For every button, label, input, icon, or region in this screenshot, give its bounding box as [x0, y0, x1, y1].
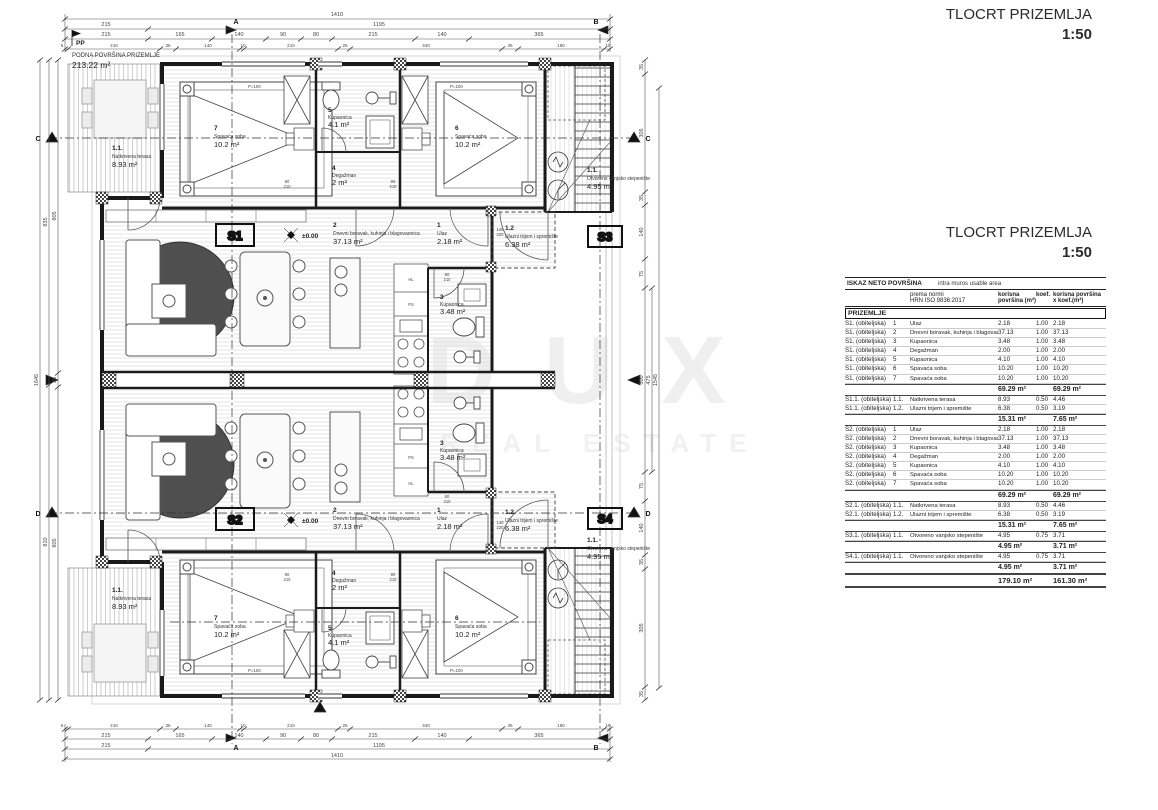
cell-area-coef: 37.13	[1053, 435, 1105, 443]
unit-label-s4: S4	[598, 512, 613, 526]
cell-area: 4.10	[998, 462, 1036, 470]
room-area: 4.95 m²	[587, 182, 613, 191]
cell-coefficient: 1.00	[1036, 480, 1053, 488]
cell-area-coef: 4.10	[1053, 356, 1105, 364]
marker-b: B	[593, 745, 598, 752]
dim-label: 475	[646, 375, 652, 384]
room-area: 4.95 m²	[587, 552, 613, 561]
cell-number	[893, 563, 910, 573]
sink-icon	[366, 92, 378, 104]
cell-coefficient: 1.00	[1036, 338, 1053, 346]
appliance-tag: HL	[408, 277, 414, 282]
cell-number	[893, 575, 910, 586]
dim-label: 215	[101, 733, 110, 739]
section-flag-d	[46, 507, 58, 517]
cell-area-coef: 10.20	[1053, 480, 1105, 488]
cell-area: 2.00	[998, 453, 1036, 461]
cell-area-coef: 2.18	[1053, 426, 1105, 434]
cell-room-name: Spavaća soba	[910, 365, 998, 373]
dim-label: 340	[422, 43, 430, 48]
dim-label: 10	[240, 723, 246, 728]
cell-area: 6.38	[998, 405, 1036, 413]
dim-label: 140	[234, 32, 243, 38]
dim-label: 90	[280, 32, 286, 38]
dim-label: 165	[175, 733, 184, 739]
cell-number: 1.2.	[893, 405, 910, 413]
cell-number: 2	[893, 329, 910, 337]
table-title: ISKAZ NETO POVRŠINA	[847, 280, 922, 287]
cell-area: 8.93	[998, 502, 1036, 510]
table-row: 4.95 m² 3.71 m²	[845, 562, 1106, 574]
table-row: 69.29 m² 69.29 m²	[845, 384, 1106, 396]
cell-area: 37.13	[998, 435, 1036, 443]
cell-area: 2.18	[998, 426, 1036, 434]
room-number: 4	[332, 165, 336, 172]
room-number: 2	[333, 507, 337, 514]
cell-unit: S1. (obiteljska)	[845, 347, 893, 355]
cell-coefficient: 1.00	[1036, 435, 1053, 443]
table-row: S2.1. (obiteljska) 1.1. Natkrivena teras…	[845, 502, 1106, 511]
table-row: S2. (obiteljska) 7 Spavaća soba 10.20 1.…	[845, 480, 1106, 489]
cell-room-name: Degažman	[910, 347, 998, 355]
dim-label: 305	[639, 623, 645, 632]
dim-label: 35	[639, 691, 645, 697]
room-area: 2 m²	[332, 178, 348, 187]
dim-label: 190	[557, 43, 565, 48]
cell-unit: S2. (obiteljska)	[845, 471, 893, 479]
table-row: S2. (obiteljska) 2 Dnevni boravak, kuhin…	[845, 435, 1106, 444]
table-row: S2. (obiteljska) 1 Ulaz 2.18 1.00 2.18	[845, 426, 1106, 435]
cell-area-coef: 7.65 m²	[1053, 521, 1105, 531]
cell-coefficient: 0.50	[1036, 502, 1053, 510]
cell-room-name: Otvoreno vanjsko stepenište	[910, 532, 998, 540]
cell-number	[893, 415, 910, 425]
dim-label: 1195	[373, 22, 385, 28]
dim-label: 10	[240, 43, 246, 48]
dim-label: 10	[605, 723, 611, 728]
cell-room-name: Spavaća soba	[910, 471, 998, 479]
door-tag: 210	[390, 184, 398, 189]
room-area: 2 m²	[332, 583, 348, 592]
area-table-columns: prema normi HRN ISO 9836:2017 korisna po…	[845, 290, 1106, 307]
window-tag: P=100	[450, 84, 463, 89]
cell-area-coef: 69.29 m²	[1053, 491, 1105, 501]
dim-label: 140	[639, 523, 645, 532]
table-row: S1. (obiteljska) 4 Degažman 2.00 1.00 2.…	[845, 347, 1106, 356]
dim-label: 1545	[653, 374, 659, 386]
room-number: 4	[332, 570, 336, 577]
dim-label: 25	[342, 43, 348, 48]
table-row: S1.1. (obiteljska) 1.2. Ulazni trijem i …	[845, 405, 1106, 414]
door-tag: 210	[284, 577, 292, 582]
cell-room-name: Kupaonica	[910, 338, 998, 346]
dim-label: 140	[639, 227, 645, 236]
cell-room-name: Spavaća soba	[910, 480, 998, 488]
table-row: 15.31 m² 7.65 m²	[845, 520, 1106, 532]
dim-label: 190	[557, 723, 565, 728]
cell-area: 4.95 m²	[998, 563, 1036, 573]
cell-unit: S1. (obiteljska)	[845, 338, 893, 346]
cell-room-name	[910, 415, 998, 425]
cell-area: 15.31 m²	[998, 415, 1036, 425]
coffee-table	[152, 284, 186, 318]
dim-label: 25	[342, 723, 348, 728]
cell-coefficient	[1036, 575, 1053, 586]
door-tag: 220	[497, 525, 505, 530]
room-area: 6.38 m²	[505, 524, 531, 533]
cell-number: 7	[893, 375, 910, 383]
cell-number: 3	[893, 338, 910, 346]
dim-label: 140	[437, 32, 446, 38]
dim-label: 5	[61, 43, 64, 48]
cell-room-name: Ulaz	[910, 426, 998, 434]
dim-label: 1410	[331, 12, 343, 18]
floor-note-code: PP	[76, 40, 85, 47]
cell-unit: S1. (obiteljska)	[845, 329, 893, 337]
unit-label-s3: S3	[598, 230, 613, 244]
cell-unit	[845, 521, 893, 531]
cell-room-name	[910, 385, 998, 395]
cell-number	[893, 385, 910, 395]
room-area: 6.38 m²	[505, 240, 531, 249]
room-number: 1	[437, 222, 441, 229]
north-tick	[314, 702, 326, 712]
toilet-icon	[322, 670, 340, 678]
cell-coefficient: 1.00	[1036, 453, 1053, 461]
dim-label: 80	[313, 32, 319, 38]
dim-label: 140	[437, 733, 446, 739]
cell-area-coef: 4.46	[1053, 502, 1105, 510]
table-row: 4.95 m² 3.71 m²	[845, 541, 1106, 553]
room-number: 5	[328, 107, 332, 114]
table-row: S1. (obiteljska) 1 Ulaz 2.18 1.00 2.18	[845, 320, 1106, 329]
dim-label: 35	[507, 723, 513, 728]
unit-label-s1: S1	[228, 229, 243, 243]
cell-room-name: Ulaz	[910, 320, 998, 328]
table-row: S1. (obiteljska) 3 Kupaonica 3.48 1.00 3…	[845, 338, 1106, 347]
dim-label: 140	[204, 723, 212, 728]
marker-d: D	[35, 511, 40, 518]
window-tag: P=100	[248, 668, 261, 673]
dim-label: 835	[43, 217, 49, 226]
window-tag: P=100	[450, 668, 463, 673]
room-number: 6	[455, 615, 459, 622]
cell-number: 4	[893, 453, 910, 461]
dim-label: 305	[639, 128, 645, 137]
dim-label: 215	[368, 733, 377, 739]
dim-label: 1195	[373, 743, 385, 749]
table-row: S2. (obiteljska) 6 Spavaća soba 10.20 1.…	[845, 471, 1106, 480]
cell-room-name	[910, 575, 998, 586]
cell-area-coef: 3.71	[1053, 553, 1105, 561]
room-area: 3.48 m²	[440, 307, 466, 316]
table-row: 179.10 m² 161.30 m²	[845, 574, 1106, 588]
cell-unit: S1. (obiteljska)	[845, 365, 893, 373]
cell-room-name: Ulazni trijem i spremište	[910, 405, 998, 413]
dim-label: 75	[639, 483, 645, 489]
col-coefficient: koef.	[1036, 292, 1053, 304]
room-area: 8.93 m²	[112, 602, 138, 611]
room-number: 7	[214, 125, 218, 132]
cell-coefficient	[1036, 563, 1053, 573]
cell-area-coef: 10.20	[1053, 375, 1105, 383]
cell-number	[893, 491, 910, 501]
cell-coefficient: 0.50	[1036, 396, 1053, 404]
level-value: ±0.00	[302, 233, 319, 240]
cell-coefficient	[1036, 542, 1053, 552]
cell-area: 15.31 m²	[998, 521, 1036, 531]
cell-room-name	[910, 542, 998, 552]
table-row: S1.1. (obiteljska) 1.1. Natkrivena teras…	[845, 396, 1106, 405]
dim-label: 210	[110, 723, 118, 728]
cell-coefficient: 0.75	[1036, 553, 1053, 561]
cell-coefficient: 1.00	[1036, 356, 1053, 364]
table-row: S1. (obiteljska) 7 Spavaća soba 10.20 1.…	[845, 375, 1106, 384]
room-area: 4.1 m²	[328, 638, 350, 647]
dim-label: 140	[234, 733, 243, 739]
cell-number: 2	[893, 435, 910, 443]
cell-unit	[845, 415, 893, 425]
dim-label: 215	[101, 22, 110, 28]
room-number: 1.1.	[587, 537, 598, 544]
sofa	[126, 404, 216, 436]
dim-label: 215	[101, 32, 110, 38]
cell-coefficient: 1.00	[1036, 320, 1053, 328]
area-table-body: S1. (obiteljska) 1 Ulaz 2.18 1.00 2.18 S…	[845, 320, 1106, 588]
cell-room-name	[910, 491, 998, 501]
cell-area-coef: 3.71 m²	[1053, 563, 1105, 573]
room-area: 10.2 m²	[455, 140, 481, 149]
outdoor-table	[94, 624, 146, 682]
cell-number: 3	[893, 444, 910, 452]
room-number: 3	[440, 440, 444, 447]
dim-label: 210	[287, 43, 295, 48]
cell-unit: S2. (obiteljska)	[845, 480, 893, 488]
cell-coefficient: 0.50	[1036, 511, 1053, 519]
cell-area-coef: 3.71	[1053, 532, 1105, 540]
cell-area-coef: 2.18	[1053, 320, 1105, 328]
cell-number: 1.1.	[893, 532, 910, 540]
dim-label: 35	[639, 559, 645, 565]
cell-number: 1	[893, 426, 910, 434]
room-area: 3.48 m²	[440, 453, 466, 462]
room-number: 5	[328, 625, 332, 632]
cell-area-coef: 10.20	[1053, 365, 1105, 373]
cell-unit: S1. (obiteljska)	[845, 375, 893, 383]
cell-room-name	[910, 563, 998, 573]
dim-label: 500	[639, 375, 645, 384]
door-tag: 210	[390, 577, 398, 582]
drawing-title: TLOCRT PRIZEMLJA	[880, 224, 1092, 241]
sink-icon	[454, 351, 466, 363]
room-number: 1.1.	[587, 167, 598, 174]
dim-label: 805	[52, 538, 58, 547]
dim-label: 1645	[34, 374, 40, 386]
cell-room-name: Kupaonica	[910, 356, 998, 364]
door-tag: 210	[444, 499, 452, 504]
cell-unit: S2. (obiteljska)	[845, 435, 893, 443]
toilet-icon	[322, 82, 340, 90]
room-number: 2	[333, 222, 337, 229]
floor-note-area: 213.22 m²	[72, 60, 110, 70]
kitchen-counter	[394, 386, 428, 496]
cell-area: 69.29 m²	[998, 385, 1036, 395]
toilet-icon	[453, 424, 475, 442]
dim-label: 35	[507, 43, 513, 48]
door-tag: 210	[444, 277, 452, 282]
cell-area: 10.20	[998, 471, 1036, 479]
marker-a: A	[233, 745, 238, 752]
dim-label: 365	[534, 733, 543, 739]
marker-d: D	[645, 511, 650, 518]
area-table-header: ISKAZ NETO POVRŠINA intra muros usable a…	[845, 277, 1106, 290]
cell-area-coef: 3.48	[1053, 444, 1105, 452]
window-tag: P=100	[248, 84, 261, 89]
cell-unit	[845, 575, 893, 586]
door-tag: 220	[497, 232, 505, 237]
cell-coefficient: 1.00	[1036, 365, 1053, 373]
cell-number	[893, 521, 910, 531]
cell-coefficient	[1036, 415, 1053, 425]
room-area: 37.13 m²	[333, 237, 363, 246]
cell-area-coef: 161.30 m²	[1053, 575, 1105, 586]
room-area: 37.13 m²	[333, 522, 363, 531]
room-area: 10.2 m²	[214, 630, 240, 639]
room-number: 3	[440, 294, 444, 301]
col-area-times-coef: korisna površina x koef.(m²)	[1053, 292, 1105, 304]
cell-area: 2.18	[998, 320, 1036, 328]
dim-label: 35	[52, 377, 58, 383]
cell-unit	[845, 385, 893, 395]
dim-label: 165	[175, 32, 184, 38]
cell-number: 1.1.	[893, 502, 910, 510]
cell-unit: S3.1. (obiteljska)	[845, 532, 893, 540]
col-norm: prema normi HRN ISO 9836:2017	[910, 292, 998, 304]
dim-label: 35	[639, 195, 645, 201]
cell-room-name: Dnevni boravak, kuhinja i blagovaonica	[910, 435, 998, 443]
cell-unit: S1.1. (obiteljska)	[845, 405, 893, 413]
cell-number: 1.1.	[893, 396, 910, 404]
marker-c: C	[35, 136, 40, 143]
sink-icon	[366, 656, 378, 668]
room-area: 2.18 m²	[437, 237, 463, 246]
cell-number: 5	[893, 356, 910, 364]
dim-label: 35	[639, 64, 645, 70]
dim-label: 75	[639, 271, 645, 277]
cell-area: 6.38	[998, 511, 1036, 519]
room-area: 10.2 m²	[455, 630, 481, 639]
cell-number: 6	[893, 471, 910, 479]
table-section-title: PRIZEMLJE	[845, 308, 1106, 319]
cell-coefficient	[1036, 491, 1053, 501]
title-block: TLOCRT PRIZEMLJA 1:50	[880, 6, 1092, 43]
appliance-tag: HL	[408, 481, 414, 486]
dim-label: 10	[605, 43, 611, 48]
cell-coefficient: 1.00	[1036, 426, 1053, 434]
cell-area: 4.10	[998, 356, 1036, 364]
cell-number: 1	[893, 320, 910, 328]
col-usable-area: korisna površina (m²)	[998, 292, 1036, 304]
cell-room-name: Spavaća soba	[910, 375, 998, 383]
section-flag-c	[46, 132, 58, 142]
cell-number: 6	[893, 365, 910, 373]
cell-unit	[845, 563, 893, 573]
cell-coefficient: 1.00	[1036, 444, 1053, 452]
room-number: 6	[455, 125, 459, 132]
cell-unit: S1. (obiteljska)	[845, 320, 893, 328]
dim-label: 35	[165, 723, 171, 728]
cell-number: 1.1.	[893, 553, 910, 561]
dim-label: 210	[110, 43, 118, 48]
cell-area-coef: 4.46	[1053, 396, 1105, 404]
table-row: S2. (obiteljska) 4 Degažman 2.00 1.00 2.…	[845, 453, 1106, 462]
cell-area-coef: 7.65 m²	[1053, 415, 1105, 425]
area-table: ISKAZ NETO POVRŠINA intra muros usable a…	[845, 277, 1106, 588]
cell-room-name: Natkrivena terasa	[910, 502, 998, 510]
table-row: S1. (obiteljska) 6 Spavaća soba 10.20 1.…	[845, 365, 1106, 374]
room-area: 4.1 m²	[328, 120, 350, 129]
sink-icon	[454, 397, 466, 409]
appliance-tag: PS	[408, 455, 414, 460]
dim-label: 140	[204, 43, 212, 48]
cell-unit: S2.1. (obiteljska)	[845, 511, 893, 519]
cell-coefficient: 1.00	[1036, 471, 1053, 479]
cell-number: 1.2.	[893, 511, 910, 519]
cell-coefficient	[1036, 521, 1053, 531]
cell-area: 3.48	[998, 444, 1036, 452]
cell-area: 4.95	[998, 553, 1036, 561]
cell-unit: S2. (obiteljska)	[845, 462, 893, 470]
cell-area-coef: 2.00	[1053, 453, 1105, 461]
cell-coefficient: 0.50	[1036, 405, 1053, 413]
cell-unit: S2.1. (obiteljska)	[845, 502, 893, 510]
marker-a: A	[233, 19, 238, 26]
cell-number: 7	[893, 480, 910, 488]
cell-area-coef: 37.13	[1053, 329, 1105, 337]
room-area: 8.93 m²	[112, 160, 138, 169]
cell-area: 3.48	[998, 338, 1036, 346]
cell-area: 37.13	[998, 329, 1036, 337]
cell-area: 4.95	[998, 532, 1036, 540]
room-number: 1.2	[505, 509, 514, 516]
cell-area-coef: 3.19	[1053, 405, 1105, 413]
cell-coefficient: 1.00	[1036, 375, 1053, 383]
cell-unit: S2. (obiteljska)	[845, 426, 893, 434]
cell-room-name: Kupaonica	[910, 444, 998, 452]
cell-area: 179.10 m²	[998, 575, 1036, 586]
cell-area-coef: 2.00	[1053, 347, 1105, 355]
dim-label: 805	[52, 211, 58, 220]
room-number: 7	[214, 615, 218, 622]
unit-label-s2: S2	[228, 513, 243, 527]
door-tag: 210	[284, 184, 292, 189]
room-number: 1	[437, 507, 441, 514]
floor-plan-canvas: ±0.00 ±0.00 S1 S2 S3 S4 7 Spavaća soba 1…	[0, 0, 770, 810]
dim-label: 340	[422, 723, 430, 728]
cell-area: 10.20	[998, 480, 1036, 488]
cell-area-coef: 69.29 m²	[1053, 385, 1105, 395]
dim-label: 215	[368, 32, 377, 38]
cell-room-name: Natkrivena terasa	[910, 396, 998, 404]
appliance-tag: PS	[408, 302, 414, 307]
cell-coefficient: 1.00	[1036, 347, 1053, 355]
toilet-icon	[453, 318, 475, 336]
cell-area-coef: 4.10	[1053, 462, 1105, 470]
table-row: 69.29 m² 69.29 m²	[845, 490, 1106, 502]
cell-coefficient: 1.00	[1036, 329, 1053, 337]
table-row: S4.1. (obiteljska) 1.1. Otvoreno vanjsko…	[845, 553, 1106, 562]
table-row: S2. (obiteljska) 5 Kupaonica 4.10 1.00 4…	[845, 462, 1106, 471]
